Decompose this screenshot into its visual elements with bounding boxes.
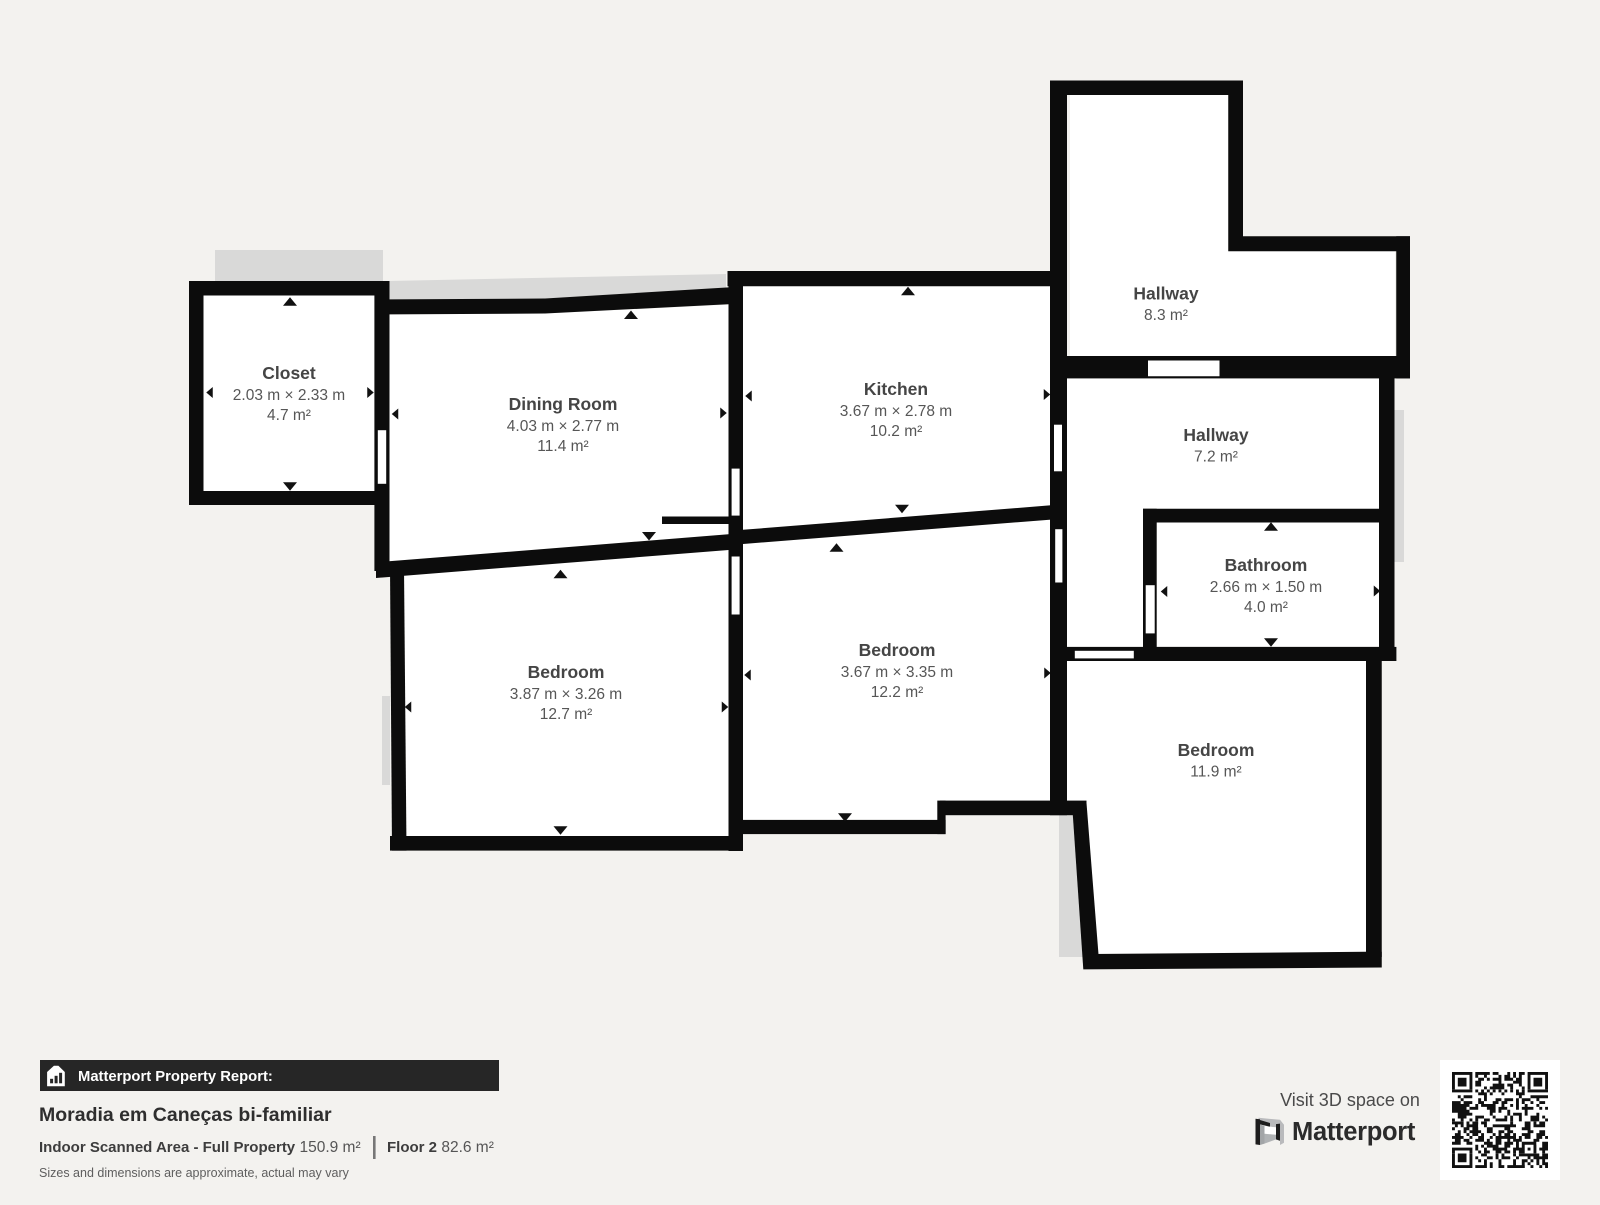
svg-text:Bedroom: Bedroom (528, 662, 605, 682)
svg-text:Closet: Closet (262, 363, 316, 383)
svg-text:2.03 m × 2.33 m: 2.03 m × 2.33 m (233, 387, 345, 404)
svg-text:Bedroom: Bedroom (1178, 740, 1255, 760)
svg-text:3.67 m × 2.78 m: 3.67 m × 2.78 m (840, 403, 952, 420)
svg-text:Kitchen: Kitchen (864, 379, 928, 399)
svg-text:Indoor Scanned Area - Full Pro: Indoor Scanned Area - Full Property 150.… (39, 1139, 361, 1156)
svg-text:Moradia em Caneças bi-familiar: Moradia em Caneças bi-familiar (39, 1104, 332, 1126)
svg-text:Bathroom: Bathroom (1225, 555, 1308, 575)
svg-text:Dining Room: Dining Room (509, 394, 618, 414)
svg-text:Hallway: Hallway (1133, 284, 1198, 304)
svg-text:10.2 m²: 10.2 m² (870, 423, 923, 440)
svg-text:4.7 m²: 4.7 m² (267, 407, 311, 424)
svg-text:Sizes and dimensions are appro: Sizes and dimensions are approximate, ac… (39, 1166, 350, 1180)
svg-text:3.67 m × 3.35 m: 3.67 m × 3.35 m (841, 664, 953, 681)
svg-text:4.03 m × 2.77 m: 4.03 m × 2.77 m (507, 418, 619, 435)
svg-text:2.66 m × 1.50 m: 2.66 m × 1.50 m (1210, 579, 1322, 596)
svg-text:12.2 m²: 12.2 m² (871, 684, 924, 701)
svg-text:Matterport: Matterport (1292, 1118, 1416, 1146)
svg-text:Floor 2 82.6 m²: Floor 2 82.6 m² (387, 1139, 494, 1156)
svg-text:11.9 m²: 11.9 m² (1190, 764, 1241, 781)
svg-text:4.0 m²: 4.0 m² (1244, 599, 1288, 616)
svg-text:8.3 m²: 8.3 m² (1144, 307, 1188, 324)
svg-text:11.4 m²: 11.4 m² (537, 438, 588, 455)
svg-text:3.87 m × 3.26 m: 3.87 m × 3.26 m (510, 686, 622, 703)
svg-text:Bedroom: Bedroom (859, 640, 936, 660)
svg-text:Hallway: Hallway (1183, 425, 1248, 445)
svg-text:Matterport Property Report:: Matterport Property Report: (78, 1069, 273, 1085)
svg-text:12.7 m²: 12.7 m² (540, 706, 593, 723)
svg-text:7.2 m²: 7.2 m² (1194, 449, 1238, 466)
svg-text:Visit 3D space on: Visit 3D space on (1280, 1090, 1420, 1110)
